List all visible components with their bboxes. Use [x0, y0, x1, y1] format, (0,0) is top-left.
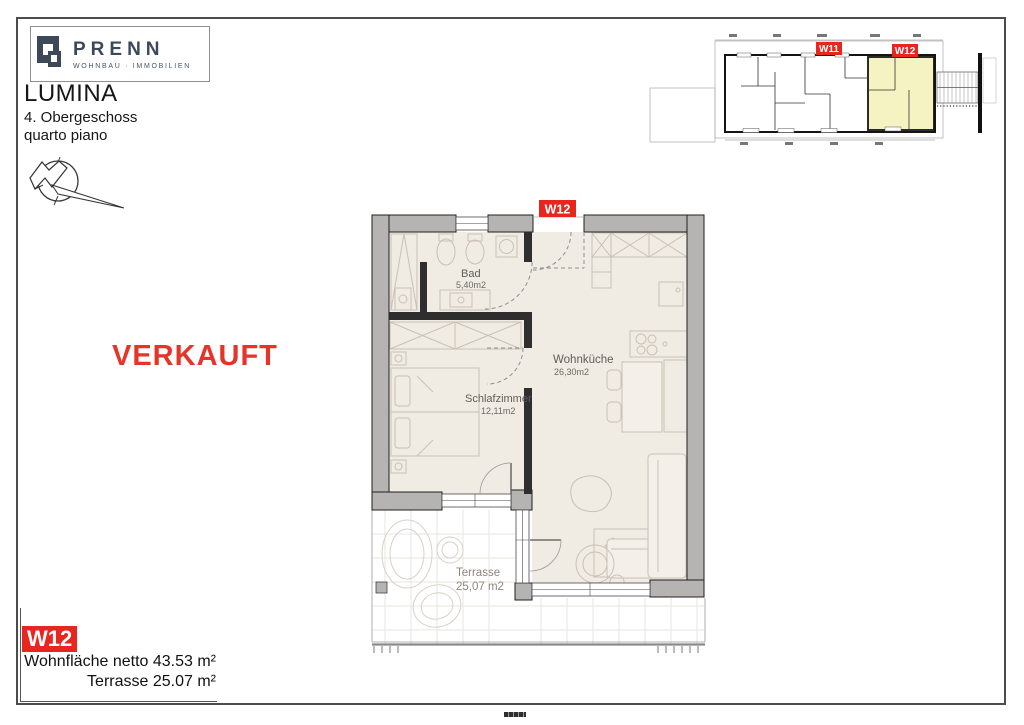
living-area-value: 43.53 m²: [153, 653, 216, 670]
unit-area-summary: Wohnfläche netto 43.53 m² Terrasse 25.07…: [24, 652, 216, 692]
keyplan-label-w12: W12: [895, 46, 916, 57]
keyplan-label-w11: W11: [819, 44, 839, 55]
terrace-area-label: Terrasse: [87, 673, 148, 690]
company-logo: PRENN WOHNBAU · IMMOBILIEN: [30, 26, 210, 82]
prenn-logo-icon: [37, 36, 64, 73]
key-plan-overview: W11 W12: [645, 28, 1005, 153]
keyplan-right-annex: [983, 58, 996, 103]
plan-unit-label-text: W12: [545, 203, 571, 217]
room-area-wohnkueche: 26,30m2: [554, 367, 589, 377]
terrace-area-line: Terrasse 25.07 m²: [24, 672, 216, 692]
footer-mark: [504, 712, 526, 717]
room-label-wohnkueche: Wohnküche: [553, 354, 614, 366]
living-area-line: Wohnfläche netto 43.53 m²: [24, 652, 216, 672]
floor-label-italian: quarto piano: [24, 127, 107, 144]
keyplan-right-wall: [978, 53, 982, 133]
room-label-terrasse: Terrasse: [456, 567, 500, 579]
floor-label-german: 4. Obergeschoss: [24, 109, 137, 126]
project-title: LUMINA: [24, 80, 118, 108]
terrace-column: [376, 582, 387, 593]
terrace-railing-ticks: [374, 646, 698, 653]
keyplan-highlighted-unit-w12: [868, 57, 934, 130]
apartment-floorplan: Terrasse 25,07 m2: [355, 192, 720, 682]
room-label-bad: Bad: [461, 268, 481, 280]
room-area-bad: 5,40m2: [456, 280, 486, 290]
room-label-schlafzimmer: Schlafzimmer: [465, 393, 532, 405]
terrace-area-value: 25.07 m²: [153, 673, 216, 690]
keyplan-stairs: [937, 72, 978, 106]
living-area-label: Wohnfläche netto: [24, 653, 148, 670]
north-arrow-icon: [22, 148, 137, 216]
plan-unit-label: W12: [539, 200, 576, 217]
brand-subtitle: WOHNBAU · IMMOBILIEN: [73, 63, 191, 70]
brand-name: PRENN: [73, 39, 191, 61]
terrace-plants: [382, 520, 466, 632]
status-stamp-sold: VERKAUFT: [112, 340, 278, 373]
unit-badge: W12: [22, 626, 77, 652]
floorplan-sheet: PRENN WOHNBAU · IMMOBILIEN LUMINA 4. Obe…: [0, 0, 1024, 725]
room-area-schlafzimmer: 12,11m2: [481, 406, 515, 416]
room-area-terrasse: 25,07 m2: [456, 581, 504, 593]
